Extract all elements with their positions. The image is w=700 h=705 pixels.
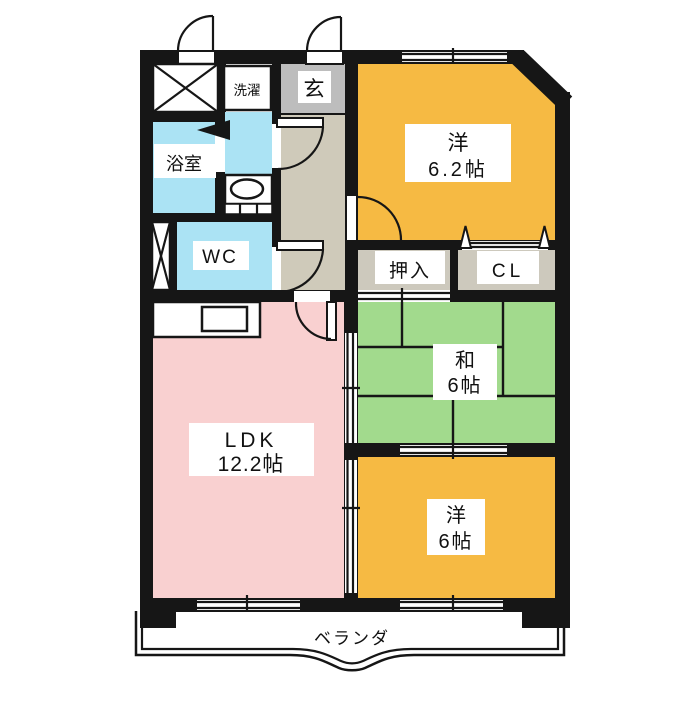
- area-hallway: [281, 113, 345, 292]
- label-genkan: 玄: [304, 78, 325, 101]
- label-ldk-name: LDK: [225, 429, 278, 452]
- label-balcony: ベランダ: [314, 629, 390, 648]
- label-cl: CL: [492, 261, 524, 282]
- label-western-6-area: 6帖: [438, 530, 473, 553]
- label-bath: 浴室: [166, 154, 202, 174]
- pipe-shaft-icon: [153, 64, 218, 112]
- label-laundry: 洗濯: [234, 83, 261, 98]
- label-ldk-area: 12.2帖: [218, 453, 285, 476]
- label-japanese-6-name: 和: [455, 349, 475, 372]
- kitchen-counter-icon: [153, 302, 260, 337]
- label-western-6-2-area: 6.2帖: [428, 158, 488, 181]
- shaft-small-icon: [152, 222, 170, 290]
- room-washroom: [225, 112, 272, 175]
- label-western-6-2-name: 洋: [448, 132, 469, 155]
- label-western-6-name: 洋: [446, 504, 466, 527]
- label-japanese-6-area: 6帖: [447, 374, 482, 397]
- label-wc: WC: [202, 247, 238, 268]
- floor-plan-page: 洋 6.2帖 押入 CL 和 6帖 洋 6帖 LDK 12.2帖 浴室 WC 洗…: [0, 0, 700, 700]
- sliding-door-oshiire: [358, 288, 450, 302]
- sink-icon: [225, 175, 272, 214]
- floor-plan: 洋 6.2帖 押入 CL 和 6帖 洋 6帖 LDK 12.2帖 浴室 WC 洗…: [0, 0, 700, 700]
- label-oshiire: 押入: [389, 260, 431, 282]
